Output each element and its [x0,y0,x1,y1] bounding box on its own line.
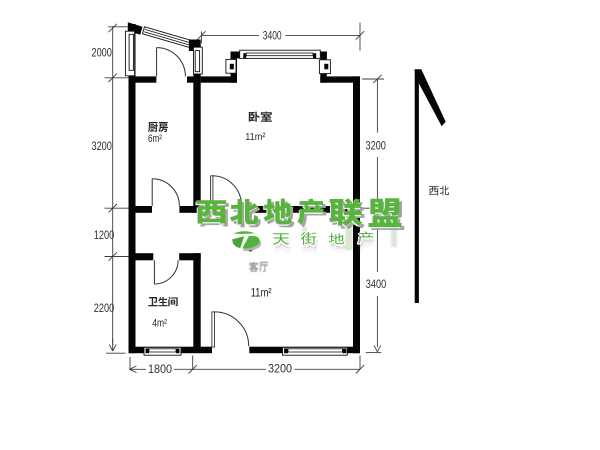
svg-text:3200: 3200 [365,138,386,152]
svg-text:3200: 3200 [268,362,292,376]
svg-text:2200: 2200 [94,301,115,315]
svg-text:11m²: 11m² [251,286,272,300]
svg-text:2000: 2000 [91,46,112,60]
svg-text:3200: 3200 [91,139,112,153]
svg-text:1800: 1800 [148,362,172,376]
svg-text:11m²: 11m² [245,131,266,143]
svg-text:1200: 1200 [94,228,115,242]
svg-text:6m²: 6m² [148,133,162,145]
svg-text:3400: 3400 [263,29,282,43]
svg-text:4m²: 4m² [152,317,167,329]
svg-text:3400: 3400 [366,277,387,291]
